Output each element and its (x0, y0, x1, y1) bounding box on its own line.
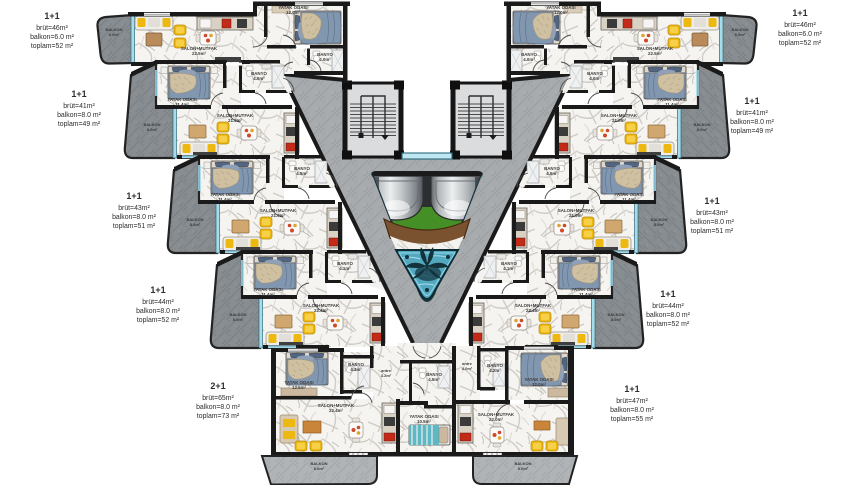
svg-text:1+1: 1+1 (744, 96, 759, 106)
svg-text:22.4m²: 22.4m² (314, 308, 328, 313)
svg-text:balkon=8.0 m²: balkon=8.0 m² (646, 312, 691, 319)
svg-text:2+1: 2+1 (210, 381, 225, 391)
svg-text:balkon=8.0 m²: balkon=8.0 m² (690, 219, 735, 226)
svg-text:brüt=44m²: brüt=44m² (652, 303, 684, 310)
svg-text:12.0m²: 12.0m² (532, 382, 546, 387)
svg-text:balkon=8.0 m²: balkon=8.0 m² (730, 119, 775, 126)
svg-text:21.0m²: 21.0m² (612, 118, 626, 123)
svg-text:toplam=51 m²: toplam=51 m² (113, 223, 156, 230)
svg-text:11.4m²: 11.4m² (622, 197, 636, 202)
svg-text:6.0m²: 6.0m² (735, 32, 746, 37)
svg-text:4.3m²: 4.3m² (350, 367, 362, 372)
svg-text:4.2m²: 4.2m² (489, 368, 501, 373)
svg-text:11.4m²: 11.4m² (665, 102, 679, 107)
svg-text:8.0m²: 8.0m² (518, 466, 529, 471)
svg-text:12.0m²: 12.0m² (286, 10, 300, 15)
svg-text:balkon=8.0 m²: balkon=8.0 m² (136, 308, 181, 315)
svg-text:10.5m²: 10.5m² (417, 419, 431, 424)
svg-text:4.5m²: 4.5m² (428, 377, 440, 382)
svg-text:balkon=8.0 m²: balkon=8.0 m² (112, 214, 157, 221)
svg-text:brüt=46m²: brüt=46m² (784, 22, 816, 29)
svg-text:4.0m²: 4.0m² (319, 57, 331, 62)
svg-text:brüt=44m²: brüt=44m² (142, 299, 174, 306)
svg-text:toplam=52 m²: toplam=52 m² (31, 43, 74, 50)
svg-text:11.4m²: 11.4m² (175, 102, 189, 107)
svg-text:22.0m²: 22.0m² (489, 417, 503, 422)
svg-text:toplam=52 m²: toplam=52 m² (137, 317, 180, 324)
svg-text:1+1: 1+1 (792, 8, 807, 18)
svg-text:balkon=8.0 m²: balkon=8.0 m² (610, 407, 655, 414)
svg-text:1+1: 1+1 (126, 191, 141, 201)
svg-text:1+1: 1+1 (44, 11, 59, 21)
svg-text:4.5m²: 4.5m² (546, 171, 558, 176)
svg-text:12.0m²: 12.0m² (554, 10, 568, 15)
svg-text:12.5m²: 12.5m² (292, 385, 306, 390)
svg-text:balkon=8.0 m²: balkon=8.0 m² (57, 112, 102, 119)
svg-text:11.4m²: 11.4m² (218, 197, 232, 202)
svg-text:4.0m²: 4.0m² (253, 76, 265, 81)
svg-text:22.5m²: 22.5m² (192, 51, 206, 56)
svg-text:balkon=6.0 m²: balkon=6.0 m² (778, 31, 823, 38)
svg-text:brüt=46m²: brüt=46m² (36, 25, 68, 32)
svg-text:brüt=41m²: brüt=41m² (63, 103, 95, 110)
svg-text:toplam=49 m²: toplam=49 m² (731, 128, 774, 135)
svg-text:8.0m²: 8.0m² (233, 317, 244, 322)
svg-text:21.0m²: 21.0m² (569, 213, 583, 218)
svg-text:toplam=51 m²: toplam=51 m² (691, 228, 734, 235)
svg-text:1+1: 1+1 (71, 89, 86, 99)
svg-text:8.0m²: 8.0m² (314, 466, 325, 471)
svg-text:toplam=49 m²: toplam=49 m² (58, 121, 101, 128)
svg-text:toplam=73 m²: toplam=73 m² (197, 413, 240, 420)
svg-text:brüt=43m²: brüt=43m² (118, 205, 150, 212)
svg-text:4.1m²: 4.1m² (503, 266, 515, 271)
svg-text:8.0m²: 8.0m² (190, 222, 201, 227)
svg-text:toplam=52 m²: toplam=52 m² (779, 40, 822, 47)
svg-text:balkon=8.0 m²: balkon=8.0 m² (196, 404, 241, 411)
svg-text:4.5m²: 4.5m² (296, 171, 308, 176)
svg-text:22.4m²: 22.4m² (526, 308, 540, 313)
svg-text:toplam=52 m²: toplam=52 m² (647, 321, 690, 328)
svg-text:22.5m²: 22.5m² (648, 51, 662, 56)
svg-text:11.4m²: 11.4m² (579, 292, 593, 297)
svg-text:6.0m²: 6.0m² (109, 32, 120, 37)
svg-text:toplam=55 m²: toplam=55 m² (611, 416, 654, 423)
svg-text:1+1: 1+1 (660, 289, 675, 299)
svg-text:4.0m²: 4.0m² (462, 366, 473, 371)
svg-text:1+1: 1+1 (150, 285, 165, 295)
svg-text:21.0m²: 21.0m² (271, 213, 285, 218)
svg-text:brüt=47m²: brüt=47m² (616, 398, 648, 405)
svg-text:8.0m²: 8.0m² (147, 127, 158, 132)
svg-text:1+1: 1+1 (624, 384, 639, 394)
svg-text:1+1: 1+1 (704, 196, 719, 206)
svg-text:8.0m²: 8.0m² (611, 317, 622, 322)
svg-text:4.0m²: 4.0m² (523, 57, 535, 62)
svg-text:4.0m²: 4.0m² (589, 76, 601, 81)
svg-text:brüt=43m²: brüt=43m² (696, 210, 728, 217)
svg-text:11.4m²: 11.4m² (261, 292, 275, 297)
svg-text:3.2m²: 3.2m² (381, 373, 392, 378)
svg-text:brüt=65m²: brüt=65m² (202, 395, 234, 402)
svg-text:4.1m²: 4.1m² (339, 266, 351, 271)
svg-text:22.4m²: 22.4m² (329, 408, 343, 413)
svg-text:8.0m²: 8.0m² (654, 222, 665, 227)
svg-text:balkon=6.0 m²: balkon=6.0 m² (30, 34, 75, 41)
svg-text:8.0m²: 8.0m² (697, 127, 708, 132)
svg-text:21.0m²: 21.0m² (228, 118, 242, 123)
svg-text:brüt=41m²: brüt=41m² (736, 110, 768, 117)
